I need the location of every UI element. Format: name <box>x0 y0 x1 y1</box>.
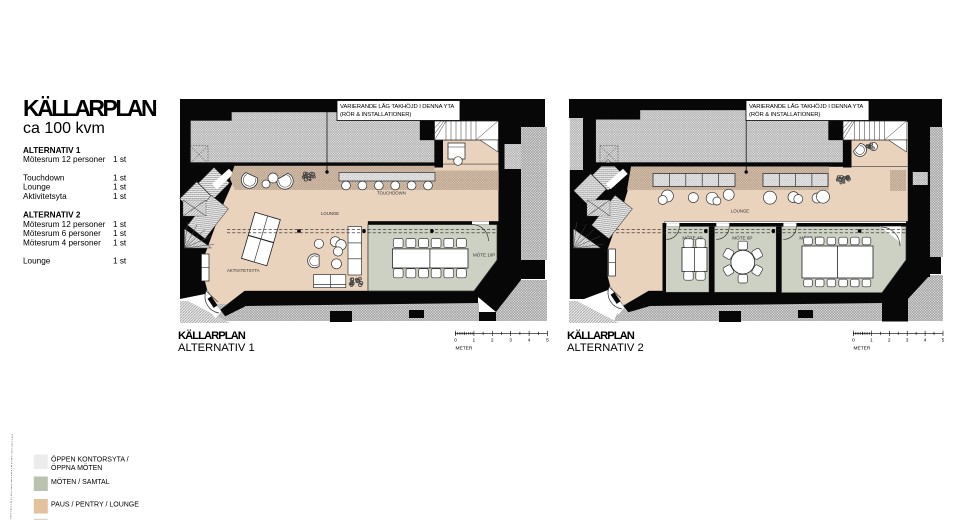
svg-text:2: 2 <box>888 338 891 344</box>
svg-text:Mötesrum 12 personer: Mötesrum 12 personer <box>23 220 106 229</box>
svg-text:0: 0 <box>852 338 855 344</box>
svg-text:(RÖR & INSTALLATIONER): (RÖR & INSTALLATIONER) <box>340 111 411 118</box>
svg-text:Aktivitetsyta: Aktivitetsyta <box>23 192 67 201</box>
svg-text:1: 1 <box>473 338 476 344</box>
svg-text:METER: METER <box>854 346 871 352</box>
svg-text:1 st: 1 st <box>113 229 127 238</box>
svg-text:MÖTE 6P: MÖTE 6P <box>732 235 752 241</box>
svg-text:METER: METER <box>456 346 473 352</box>
svg-text:2: 2 <box>491 338 494 344</box>
svg-text:VARIERANDE LÅG TAKHÖJD I DENNA: VARIERANDE LÅG TAKHÖJD I DENNA YTA <box>340 103 454 110</box>
svg-text:MÖTE 10P: MÖTE 10P <box>473 252 495 258</box>
svg-text:1 st: 1 st <box>113 183 127 192</box>
svg-text:KÄLLARPLAN: KÄLLARPLAN <box>178 329 246 342</box>
svg-text:KÄLLARPLAN: KÄLLARPLAN <box>567 329 635 342</box>
svg-text:3: 3 <box>906 338 909 344</box>
svg-text:ALTERNATIV 1: ALTERNATIV 1 <box>178 342 255 354</box>
svg-text:3: 3 <box>509 338 512 344</box>
svg-text:1 st: 1 st <box>113 173 127 182</box>
svg-text:ÖPPEN KONTORSYTA /: ÖPPEN KONTORSYTA / <box>51 456 129 464</box>
svg-text:VARIERANDE LÅG TAKHÖJD I DENNA: VARIERANDE LÅG TAKHÖJD I DENNA YTA <box>749 103 863 110</box>
svg-text:LOUNGE: LOUNGE <box>321 211 339 216</box>
svg-text:AKTIVITETSYTA: AKTIVITETSYTA <box>227 268 260 273</box>
svg-text:5: 5 <box>546 338 549 344</box>
svg-text:ca 100 kvm: ca 100 kvm <box>23 120 105 137</box>
svg-text:1: 1 <box>870 338 873 344</box>
svg-text:1 st: 1 st <box>113 257 127 266</box>
svg-text:1 st: 1 st <box>113 155 127 164</box>
svg-text:1 st: 1 st <box>113 238 127 247</box>
svg-text:Mötesrum 6 personer: Mötesrum 6 personer <box>23 229 101 238</box>
svg-text:ÖPPNA MÖTEN: ÖPPNA MÖTEN <box>51 464 102 472</box>
svg-text:TOUCHDOWN: TOUCHDOWN <box>377 191 406 196</box>
svg-text:LOUNGE: LOUNGE <box>731 209 749 214</box>
svg-text:4: 4 <box>528 338 531 344</box>
svg-text:ALTERNATIV 2: ALTERNATIV 2 <box>23 211 81 220</box>
svg-text:ALTERNATIV 2: ALTERNATIV 2 <box>567 342 644 354</box>
svg-text:0: 0 <box>454 338 457 344</box>
svg-text:Touchdown: Touchdown <box>23 173 65 182</box>
svg-text:ALTERNATIV 1: ALTERNATIV 1 <box>23 146 81 155</box>
svg-text:MÖTEN / SAMTAL: MÖTEN / SAMTAL <box>51 478 110 486</box>
svg-text:5: 5 <box>942 338 945 344</box>
svg-text:1 st: 1 st <box>113 220 127 229</box>
svg-text:4: 4 <box>924 338 927 344</box>
svg-text:(RÖR & INSTALLATIONER): (RÖR & INSTALLATIONER) <box>749 111 820 118</box>
svg-text:Mötesrum 12 personer: Mötesrum 12 personer <box>23 155 106 164</box>
svg-text:PAUS / PENTRY / LOUNGE: PAUS / PENTRY / LOUNGE <box>51 502 139 509</box>
svg-text:Lounge: Lounge <box>23 183 51 192</box>
svg-text:Mötesrum 4 personer: Mötesrum 4 personer <box>23 238 101 247</box>
svg-text:KÄLLARPLAN: KÄLLARPLAN <box>23 95 157 121</box>
svg-text:Lounge: Lounge <box>23 257 51 266</box>
svg-text:1 st: 1 st <box>113 192 127 201</box>
